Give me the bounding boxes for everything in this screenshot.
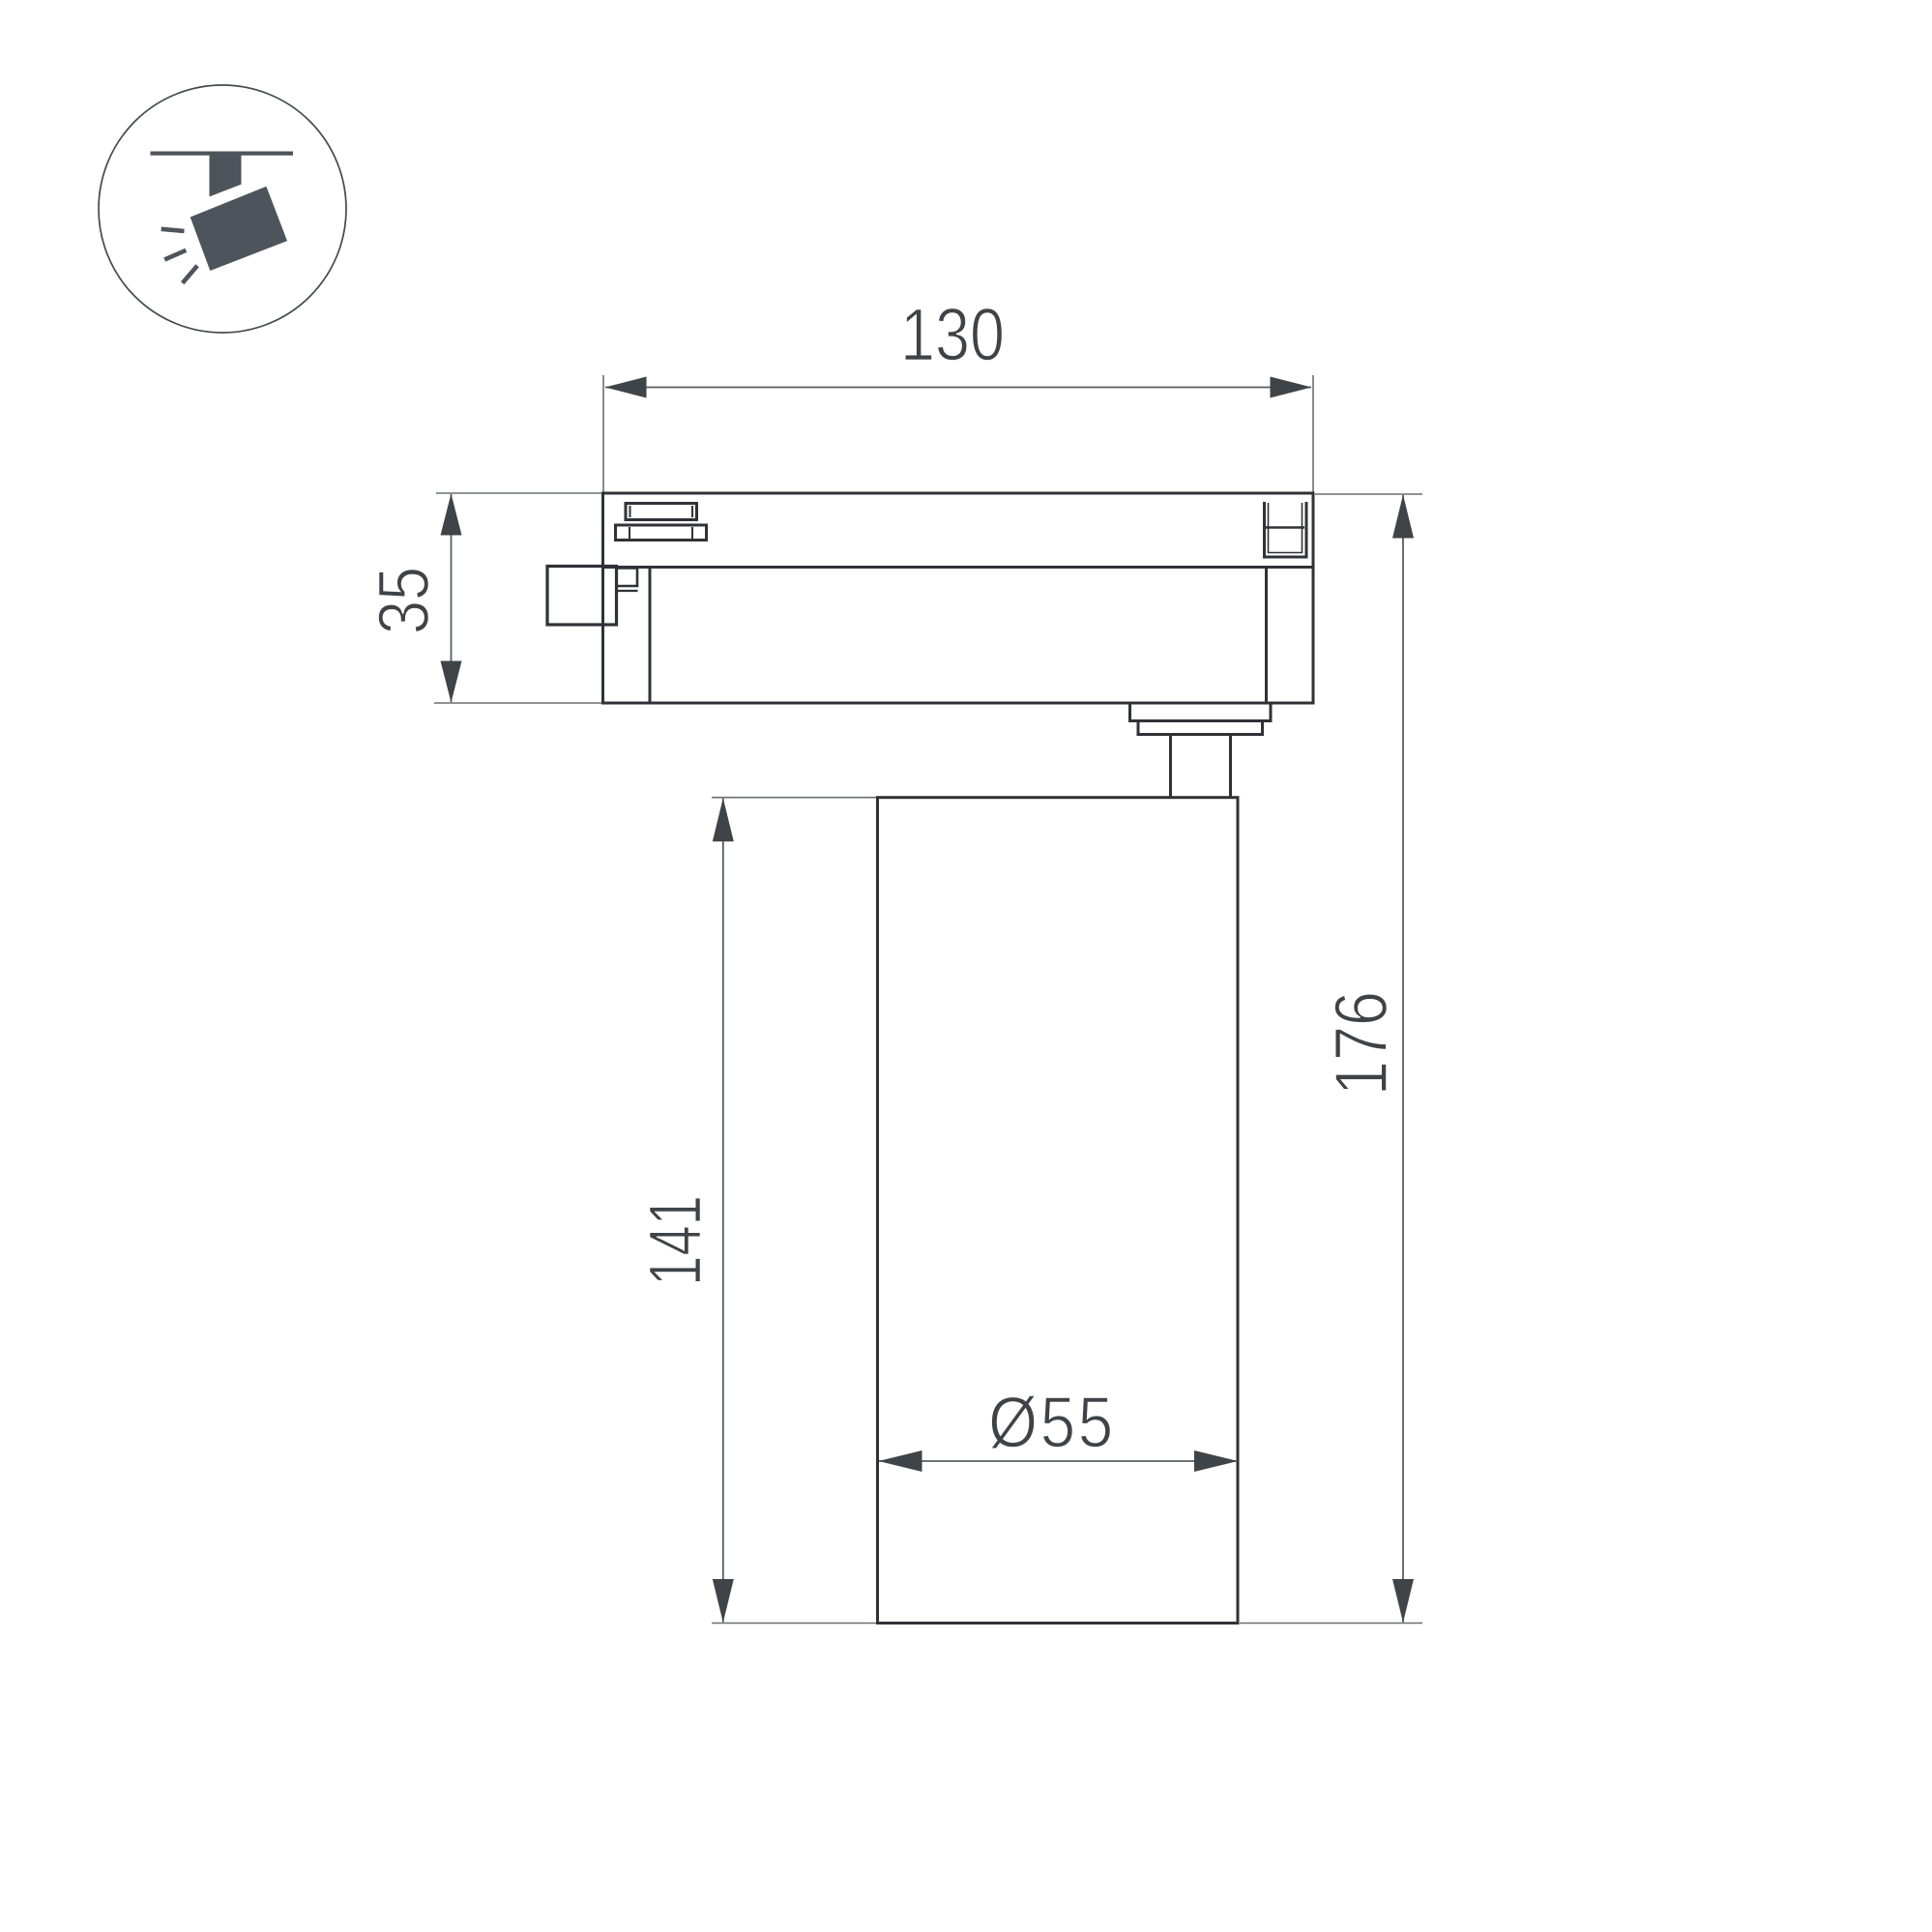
svg-text:Ø55: Ø55 — [988, 1383, 1116, 1463]
svg-text:176: 176 — [1321, 991, 1404, 1096]
svg-text:130: 130 — [900, 294, 1005, 377]
svg-text:35: 35 — [364, 567, 444, 634]
svg-text:141: 141 — [634, 1195, 717, 1286]
